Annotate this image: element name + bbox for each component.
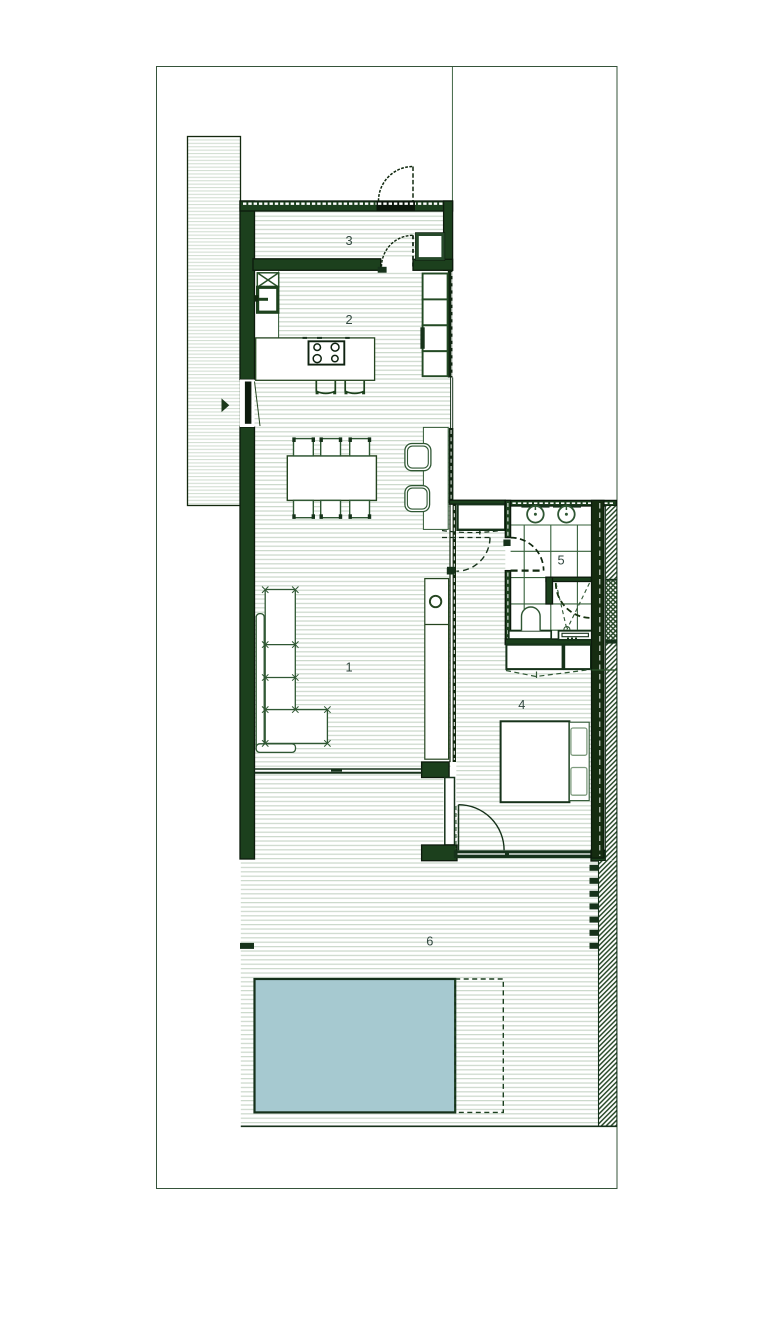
svg-text:2: 2 xyxy=(345,312,352,327)
svg-text:5: 5 xyxy=(557,553,564,568)
svg-text:4: 4 xyxy=(518,697,525,712)
svg-text:3: 3 xyxy=(345,233,352,248)
svg-text:6: 6 xyxy=(426,933,433,948)
svg-text:1: 1 xyxy=(345,660,352,675)
